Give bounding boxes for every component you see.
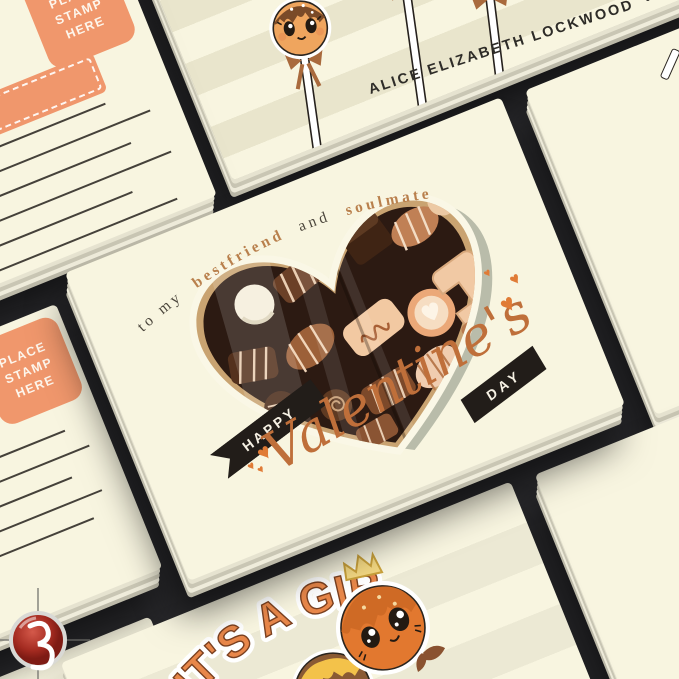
card-stack: PLACE STAMP HERE TO:: [0, 0, 679, 679]
brand-watermark-logo: [0, 580, 98, 679]
stick-fragment-icon: [660, 48, 679, 81]
cakepop-icon: [265, 0, 355, 181]
postcard-mockup-scene: PLACE STAMP HERE TO:: [0, 0, 679, 679]
stamp-placeholder-box: PLACE STAMP HERE: [0, 314, 86, 429]
